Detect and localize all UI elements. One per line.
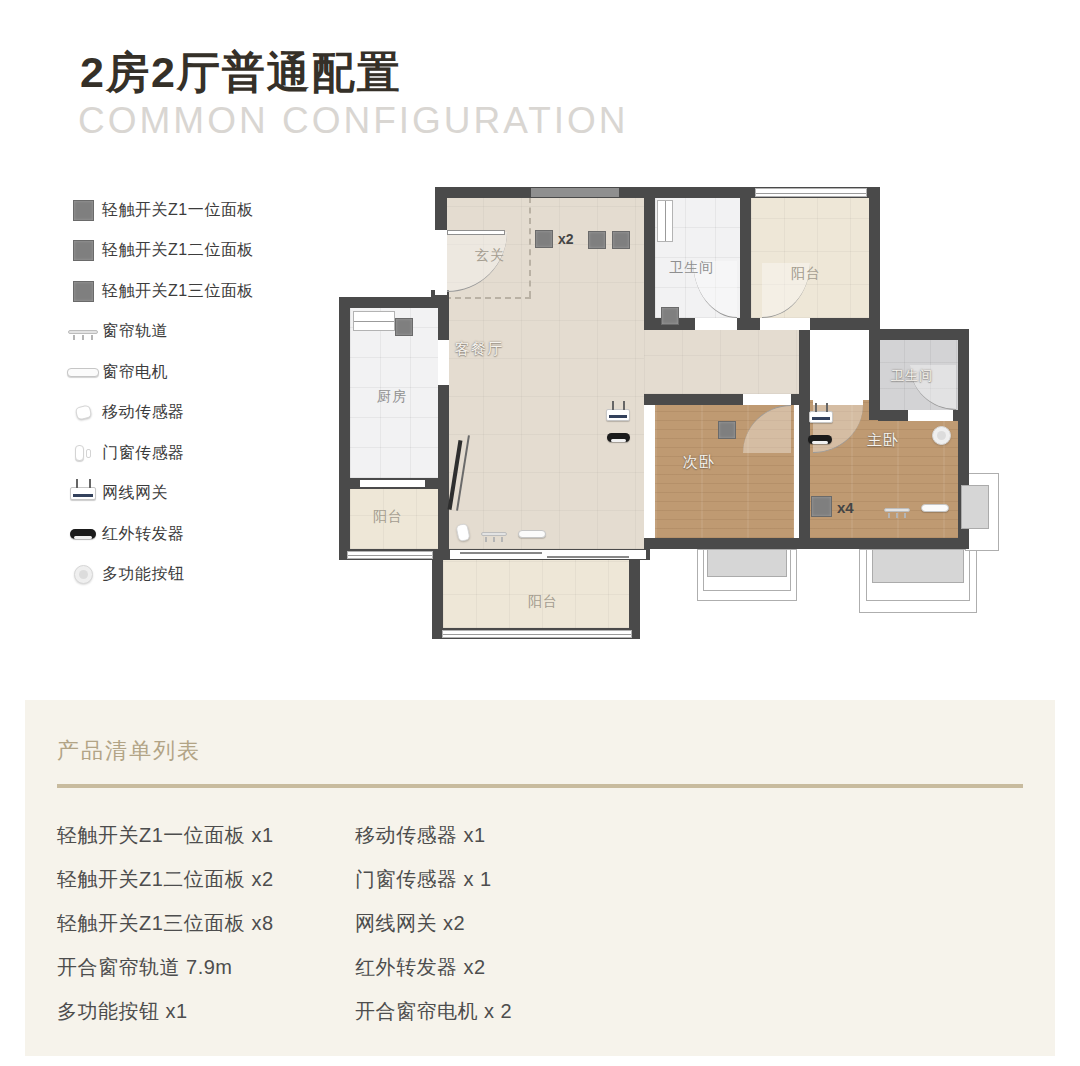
legend-row: 多功能按钮: [64, 555, 314, 596]
multi-button-icon: [932, 426, 951, 445]
legend-label: 门窗传感器: [102, 443, 185, 464]
legend-label: 网线网关: [102, 483, 168, 504]
room-label-balcony-bottom: 阳台: [528, 593, 558, 611]
legend-row: 红外转发器: [64, 514, 314, 555]
door-opening: [813, 394, 863, 405]
wall-segment: [869, 187, 880, 329]
product-item: 开合窗帘轨道 7.9m: [57, 945, 274, 989]
product-column-2: 移动传感器 x1 门窗传感器 x 1 网线网关 x2 红外转发器 x2 开合窗帘…: [355, 813, 512, 1033]
bay-window-seat: [961, 485, 989, 529]
room-label-kitchen: 厨房: [377, 388, 407, 406]
switch-panel-icon: [588, 231, 606, 249]
room-label-master: 主卧: [867, 431, 899, 450]
legend-row: 移动传感器: [64, 393, 314, 434]
legend: 轻触开关Z1一位面板 轻触开关Z1二位面板 轻触开关Z1三位面板 窗帘轨道 窗帘…: [64, 190, 314, 595]
product-column-1: 轻触开关Z1一位面板 x1 轻触开关Z1二位面板 x2 轻触开关Z1三位面板 x…: [57, 813, 274, 1033]
gateway-icon: [809, 411, 833, 423]
product-item: 轻触开关Z1三位面板 x8: [57, 901, 274, 945]
room-label-bath2: 卫生间: [891, 367, 933, 385]
sliding-door: [360, 480, 425, 487]
door-sensor-icon: [64, 444, 102, 462]
product-item: 轻触开关Z1一位面板 x1: [57, 813, 274, 857]
wall-segment: [644, 197, 655, 330]
product-item: 轻触开关Z1二位面板 x2: [57, 857, 274, 901]
hallway-floor: [644, 330, 799, 394]
legend-label: 窗帘电机: [102, 362, 168, 383]
legend-label: 轻触开关Z1三位面板: [102, 281, 254, 302]
wall-segment: [432, 560, 443, 636]
gateway-icon: [606, 409, 630, 421]
door-opening: [435, 230, 447, 295]
switch-panel-icon: [535, 230, 553, 248]
wall-segment: [339, 297, 350, 560]
window: [657, 200, 673, 242]
curtain-motor-icon: [64, 368, 102, 377]
door-opening: [743, 394, 791, 405]
ir-repeater-icon: [808, 435, 832, 444]
legend-row: 窗帘电机: [64, 352, 314, 393]
curtain-track-icon: [64, 330, 102, 334]
sliding-door-panel: [460, 552, 542, 554]
wall-segment: [740, 197, 751, 318]
wall-segment: [531, 188, 619, 197]
curtain-motor-icon: [921, 504, 949, 512]
product-item: 开合窗帘电机 x 2: [355, 989, 512, 1033]
legend-label: 窗帘轨道: [102, 321, 168, 342]
legend-row: 网线网关: [64, 474, 314, 515]
switch-panel-icon: [661, 307, 679, 325]
bay-window-seat: [872, 549, 964, 583]
legend-row: 轻触开关Z1三位面板: [64, 271, 314, 312]
room-label-bath1: 卫生间: [669, 259, 714, 277]
switch-panel-icon: [64, 240, 102, 261]
legend-row: 轻触开关Z1一位面板: [64, 190, 314, 231]
legend-row: 轻触开关Z1二位面板: [64, 231, 314, 272]
curtain-track-icon: [884, 508, 910, 512]
product-item: 网线网关 x2: [355, 901, 512, 945]
legend-label: 红外转发器: [102, 524, 185, 545]
gateway-icon: [64, 487, 102, 500]
window: [755, 188, 867, 197]
curtain-track-icon: [481, 532, 507, 536]
window: [353, 311, 395, 331]
door-opening: [695, 318, 737, 330]
product-item: 门窗传感器 x 1: [355, 857, 512, 901]
product-item: 多功能按钮 x1: [57, 989, 274, 1033]
room-label-entry: 玄关: [475, 247, 505, 265]
legend-label: 移动传感器: [102, 402, 185, 423]
ir-repeater-icon: [64, 529, 102, 539]
page-subtitle: COMMON CONFIGURATION: [78, 100, 629, 142]
room-label-balcony-left: 阳台: [373, 508, 403, 526]
door-opening: [760, 318, 810, 330]
door-opening: [908, 410, 953, 421]
legend-row: 窗帘轨道: [64, 312, 314, 353]
room-label-balcony-tr: 阳台: [791, 265, 821, 283]
wall-segment: [438, 297, 449, 549]
room-label-bedroom2: 次卧: [683, 453, 715, 472]
legend-label: 轻触开关Z1一位面板: [102, 200, 254, 221]
door-opening: [438, 340, 449, 385]
entry-dashed-line: [529, 197, 531, 297]
legend-label: 多功能按钮: [102, 564, 185, 585]
product-list-heading: 产品清单列表: [57, 736, 201, 766]
bay-window-seat: [707, 549, 787, 577]
window: [442, 630, 632, 638]
switch-panel-icon: [612, 231, 630, 249]
motion-sensor-icon: [64, 406, 102, 419]
room-label-living: 客餐厅: [455, 340, 503, 359]
curtain-motor-icon: [518, 530, 546, 538]
legend-label: 轻触开关Z1二位面板: [102, 240, 254, 261]
motion-sensor-icon: [457, 524, 469, 541]
floorplan: x2 x4 玄关 客餐厅 厨房 卫生间 阳台 卫生间 次卧 主卧 阳台 阳台: [335, 185, 1000, 655]
wall-segment: [629, 560, 640, 636]
switch-panel-icon: [64, 200, 102, 221]
wall-segment: [869, 330, 880, 420]
product-list-panel: 产品清单列表 轻触开关Z1一位面板 x1 轻触开关Z1二位面板 x2 轻触开关Z…: [25, 700, 1055, 1056]
panel-multiplier: x4: [837, 499, 854, 516]
switch-panel-icon: [811, 496, 832, 517]
legend-row: 门窗传感器: [64, 433, 314, 474]
switch-panel-icon: [64, 281, 102, 302]
window: [347, 551, 433, 559]
panel-multiplier: x2: [558, 231, 574, 247]
page-title: 2房2厅普通配置: [80, 44, 402, 102]
sliding-door-panel: [547, 556, 629, 558]
heading-divider: [57, 784, 1023, 788]
switch-panel-icon: [395, 318, 413, 336]
wall-segment: [869, 329, 969, 340]
wall-segment: [435, 187, 447, 232]
ir-repeater-icon: [607, 433, 630, 442]
product-item: 移动传感器 x1: [355, 813, 512, 857]
door-leaf: [447, 230, 505, 235]
multi-button-icon: [64, 565, 102, 584]
switch-panel-icon: [718, 421, 736, 439]
entry-dashed-line: [445, 297, 531, 299]
product-item: 红外转发器 x2: [355, 945, 512, 989]
